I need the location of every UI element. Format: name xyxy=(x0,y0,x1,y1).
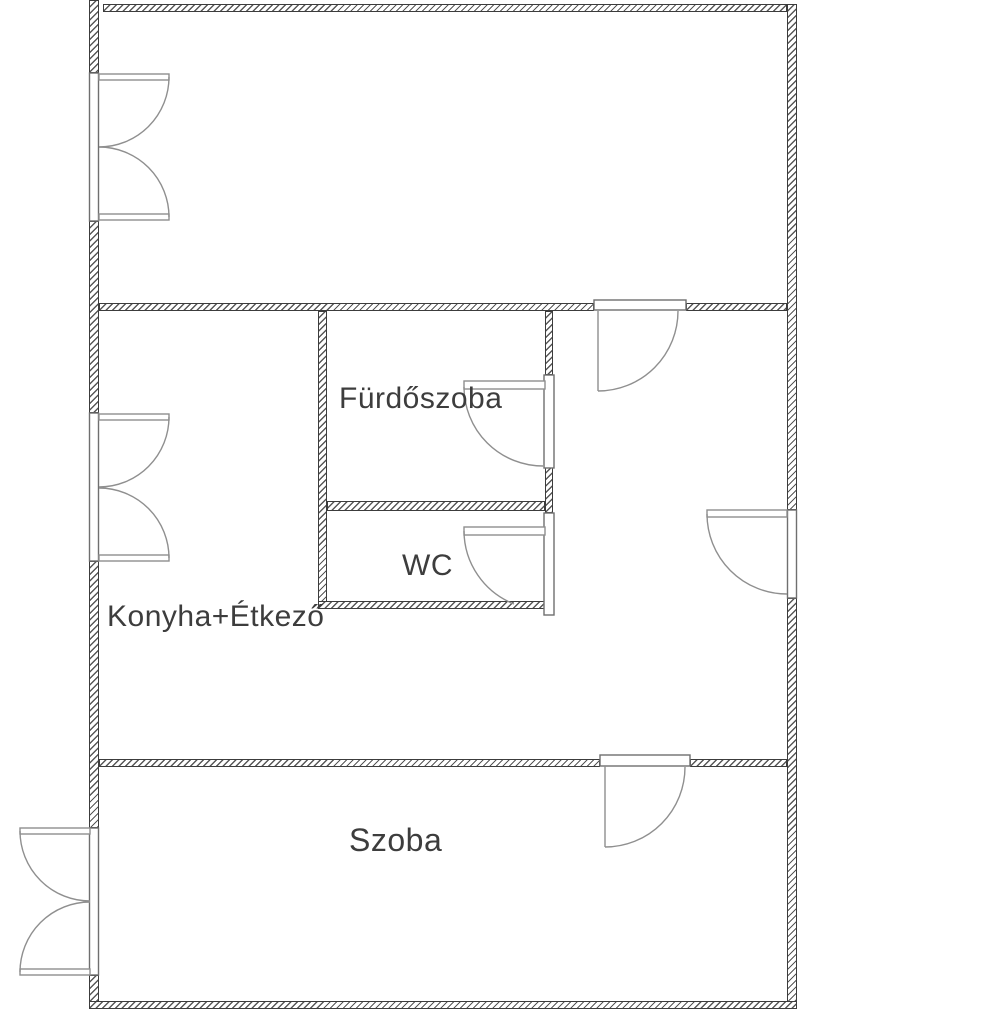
room-label-konyha-etkezo: Konyha+Étkező xyxy=(107,602,324,632)
room-label-szoba: Szoba xyxy=(349,824,442,856)
room-label-furdoszoba: Fürdőszoba xyxy=(339,384,502,414)
floor-plan: Fürdőszoba WC Konyha+Étkező Szoba xyxy=(0,0,997,1024)
door-entrance-icon xyxy=(707,510,797,598)
room-label-wc: WC xyxy=(402,551,453,581)
door-szoba-icon xyxy=(600,755,690,847)
door-top-room-icon xyxy=(594,300,686,391)
door-window-symbols xyxy=(0,0,997,1024)
window-kitchen-left-icon xyxy=(90,413,170,561)
french-window-szoba-icon xyxy=(20,828,99,975)
door-wc-icon xyxy=(464,513,554,615)
window-top-room-left-icon xyxy=(90,73,170,221)
